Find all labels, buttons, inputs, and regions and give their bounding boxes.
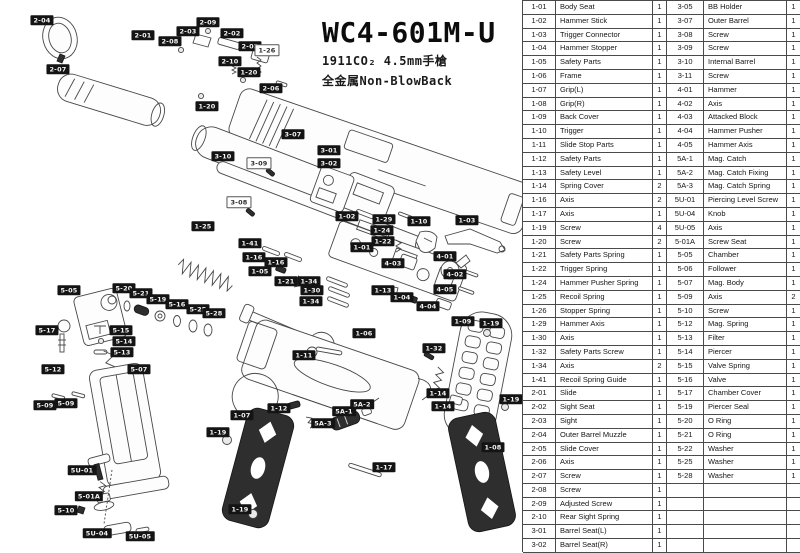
part-code: 1-13 bbox=[523, 167, 556, 181]
part-label-5U-01: 5U-01 bbox=[68, 465, 97, 475]
part-name: Grip(L) bbox=[556, 84, 653, 98]
part-qty: 1 bbox=[787, 346, 800, 360]
part-label-1-19: 1-19 bbox=[206, 427, 229, 437]
part-label-5A-2: 5A-2 bbox=[350, 399, 374, 409]
part-name: Axis bbox=[556, 456, 653, 470]
part-label-2-02: 2-02 bbox=[220, 28, 243, 38]
part-label-1-07: 1-07 bbox=[230, 410, 253, 420]
part-label-5-05: 5-05 bbox=[57, 285, 80, 295]
part-qty: 1 bbox=[653, 70, 667, 84]
part-name: Barrel Seat(L) bbox=[556, 525, 653, 539]
part-name: Axis bbox=[556, 208, 653, 222]
part-name: Back Cover bbox=[556, 111, 653, 125]
part-name: Mag. Body bbox=[704, 277, 787, 291]
part-qty: 1 bbox=[787, 318, 800, 332]
part-qty: 1 bbox=[787, 15, 800, 29]
part-qty: 1 bbox=[653, 443, 667, 457]
part-qty: 2 bbox=[787, 291, 800, 305]
part-code: 5-16 bbox=[667, 374, 704, 388]
part-label-1-01: 1-01 bbox=[350, 242, 373, 252]
part-code: 3-11 bbox=[667, 70, 704, 84]
part-name: Mag. Catch Spring bbox=[704, 180, 787, 194]
part-name: O Ring bbox=[704, 429, 787, 443]
part-qty: 1 bbox=[653, 332, 667, 346]
part-code: 5-05 bbox=[667, 249, 704, 263]
part-code: 1-05 bbox=[523, 56, 556, 70]
part-code: 3-07 bbox=[667, 15, 704, 29]
part-qty: 1 bbox=[787, 84, 800, 98]
part-code: 1-07 bbox=[523, 84, 556, 98]
part-qty: 1 bbox=[653, 318, 667, 332]
part-code: 1-10 bbox=[523, 125, 556, 139]
part-name: Screw bbox=[704, 42, 787, 56]
part-qty: 1 bbox=[787, 443, 800, 457]
part-qty: 1 bbox=[653, 305, 667, 319]
part-code: 5-15 bbox=[667, 360, 704, 374]
part-code bbox=[667, 511, 704, 525]
part-name: Trigger bbox=[556, 125, 653, 139]
part-label-1-02: 1-02 bbox=[335, 211, 358, 221]
part-label-5-07: 5-07 bbox=[127, 364, 150, 374]
part-code: 4-02 bbox=[667, 98, 704, 112]
part-qty: 1 bbox=[653, 525, 667, 539]
part-qty: 1 bbox=[787, 387, 800, 401]
part-label-1-19: 1-19 bbox=[479, 318, 502, 328]
part-qty: 1 bbox=[787, 29, 800, 43]
part-qty: 1 bbox=[787, 125, 800, 139]
part-name: Barrel Seat(R) bbox=[556, 539, 653, 553]
part-code: 1-12 bbox=[523, 153, 556, 167]
part-code: 1-11 bbox=[523, 139, 556, 153]
part-label-5U-04: 5U-04 bbox=[83, 528, 112, 538]
part-code: 5-17 bbox=[667, 387, 704, 401]
part-name: Hammer bbox=[704, 84, 787, 98]
part-code: 2-05 bbox=[523, 443, 556, 457]
part-qty: 1 bbox=[787, 222, 800, 236]
part-name bbox=[704, 525, 787, 539]
part-label-2-06: 2-06 bbox=[259, 83, 282, 93]
part-qty: 1 bbox=[653, 401, 667, 415]
part-name: Screw Seat bbox=[704, 236, 787, 250]
part-code: 5A-2 bbox=[667, 167, 704, 181]
part-label-5-17: 5-17 bbox=[35, 325, 58, 335]
part-label-4-02: 4-02 bbox=[443, 269, 466, 279]
part-label-5-16: 5-16 bbox=[165, 299, 188, 309]
part-code: 5U-05 bbox=[667, 222, 704, 236]
part-name: Safety Parts Screw bbox=[556, 346, 653, 360]
part-name: Recoil Spring Guide bbox=[556, 374, 653, 388]
part-name: Safety Parts bbox=[556, 153, 653, 167]
part-label-4-04: 4-04 bbox=[416, 301, 439, 311]
part-name: Washer bbox=[704, 456, 787, 470]
part-name: Valve Spring bbox=[704, 360, 787, 374]
part-name: Body Seat bbox=[556, 1, 653, 15]
part-qty: 1 bbox=[653, 15, 667, 29]
part-qty: 1 bbox=[787, 249, 800, 263]
part-qty bbox=[787, 539, 800, 553]
part-label-1-29: 1-29 bbox=[372, 214, 395, 224]
part-name: Screw bbox=[704, 70, 787, 84]
part-name: Axis bbox=[556, 332, 653, 346]
part-label-5-09: 5-09 bbox=[54, 398, 77, 408]
part-name: Outer Barrel Muzzle bbox=[556, 429, 653, 443]
part-label-5-15: 5-15 bbox=[109, 325, 132, 335]
part-qty: 1 bbox=[653, 56, 667, 70]
part-code: 5-10 bbox=[667, 305, 704, 319]
part-code: 1-03 bbox=[523, 29, 556, 43]
part-label-1-10: 1-10 bbox=[407, 216, 430, 226]
part-name bbox=[704, 511, 787, 525]
part-code: 4-03 bbox=[667, 111, 704, 125]
part-code: 4-01 bbox=[667, 84, 704, 98]
part-label-1-09: 1-09 bbox=[451, 316, 474, 326]
part-label-1-11: 1-11 bbox=[292, 350, 315, 360]
part-name: Spring Cover bbox=[556, 180, 653, 194]
part-name bbox=[704, 539, 787, 553]
part-code: 5-19 bbox=[667, 401, 704, 415]
part-qty: 1 bbox=[787, 167, 800, 181]
part-label-1-05: 1-05 bbox=[248, 266, 271, 276]
part-qty: 1 bbox=[787, 332, 800, 346]
parts-table: 1-01Body Seat13-05BB Holder11-02Hammer S… bbox=[522, 0, 800, 552]
part-name: Slide bbox=[556, 387, 653, 401]
part-code: 5-06 bbox=[667, 263, 704, 277]
part-name: Axis bbox=[704, 222, 787, 236]
part-name: Outer Barrel bbox=[704, 15, 787, 29]
part-code: 5A-1 bbox=[667, 153, 704, 167]
part-label-5-14: 5-14 bbox=[112, 336, 135, 346]
part-code: 1-20 bbox=[523, 236, 556, 250]
part-name: Safety Parts bbox=[556, 56, 653, 70]
part-name bbox=[704, 498, 787, 512]
part-code: 1-19 bbox=[523, 222, 556, 236]
part-label-1-32: 1-32 bbox=[422, 343, 445, 353]
part-qty bbox=[787, 511, 800, 525]
part-label-3-01: 3-01 bbox=[317, 145, 340, 155]
part-qty: 1 bbox=[787, 236, 800, 250]
part-name: Chamber bbox=[704, 249, 787, 263]
part-label-4-05: 4-05 bbox=[433, 284, 456, 294]
part-label-3-02: 3-02 bbox=[317, 158, 340, 168]
part-code: 1-08 bbox=[523, 98, 556, 112]
part-label-1-03: 1-03 bbox=[455, 215, 478, 225]
part-label-5-09: 5-09 bbox=[33, 400, 56, 410]
part-label-1-13: 1-13 bbox=[371, 285, 394, 295]
part-qty: 1 bbox=[787, 470, 800, 484]
part-label-1-34: 1-34 bbox=[299, 296, 322, 306]
part-code: 2-01 bbox=[523, 387, 556, 401]
part-qty: 1 bbox=[787, 415, 800, 429]
part-qty: 1 bbox=[787, 111, 800, 125]
part-name: Axis bbox=[704, 98, 787, 112]
part-label-1-21: 1-21 bbox=[274, 276, 297, 286]
part-qty: 1 bbox=[653, 98, 667, 112]
part-name: Adjusted Screw bbox=[556, 498, 653, 512]
part-qty: 1 bbox=[787, 360, 800, 374]
part-label-3-08: 3-08 bbox=[226, 196, 251, 208]
part-name: Safety Parts Spring bbox=[556, 249, 653, 263]
part-code: 4-04 bbox=[667, 125, 704, 139]
part-qty: 1 bbox=[787, 1, 800, 15]
part-label-3-10: 3-10 bbox=[211, 151, 234, 161]
part-name: Screw bbox=[704, 29, 787, 43]
part-code: 1-25 bbox=[523, 291, 556, 305]
part-name: Sight Seat bbox=[556, 401, 653, 415]
part-code: 5U-04 bbox=[667, 208, 704, 222]
part-qty: 1 bbox=[653, 1, 667, 15]
part-qty: 1 bbox=[653, 415, 667, 429]
part-qty: 1 bbox=[787, 153, 800, 167]
part-code: 1-22 bbox=[523, 263, 556, 277]
part-qty: 1 bbox=[653, 456, 667, 470]
part-label-3-07: 3-07 bbox=[281, 129, 304, 139]
part-qty: 1 bbox=[787, 374, 800, 388]
part-label-4-01: 4-01 bbox=[433, 251, 456, 261]
part-name: Trigger Connector bbox=[556, 29, 653, 43]
part-code: 5-14 bbox=[667, 346, 704, 360]
part-qty: 1 bbox=[787, 180, 800, 194]
model-title: WC4-601M-U bbox=[322, 16, 522, 49]
part-name: Mag. Catch Fixing bbox=[704, 167, 787, 181]
part-qty: 1 bbox=[653, 153, 667, 167]
part-label-1-08: 1-08 bbox=[481, 442, 504, 452]
part-code: 2-02 bbox=[523, 401, 556, 415]
part-name: Hammer Axis bbox=[556, 318, 653, 332]
part-name: Attacked Block bbox=[704, 111, 787, 125]
part-code: 5-21 bbox=[667, 429, 704, 443]
part-label-5-12: 5-12 bbox=[41, 364, 64, 374]
part-label-1-16: 1-16 bbox=[242, 252, 265, 262]
part-name: Axis bbox=[704, 291, 787, 305]
part-code: 1-24 bbox=[523, 277, 556, 291]
part-code: 1-21 bbox=[523, 249, 556, 263]
part-qty: 2 bbox=[653, 236, 667, 250]
part-qty: 1 bbox=[787, 98, 800, 112]
part-label-5A-3: 5A-3 bbox=[311, 418, 335, 428]
part-code bbox=[667, 525, 704, 539]
part-name: Slide Cover bbox=[556, 443, 653, 457]
part-code: 5-22 bbox=[667, 443, 704, 457]
part-name: Valve bbox=[704, 374, 787, 388]
part-label-1-19: 1-19 bbox=[228, 504, 251, 514]
part-code: 2-04 bbox=[523, 429, 556, 443]
part-qty: 1 bbox=[653, 167, 667, 181]
part-name: Screw bbox=[704, 305, 787, 319]
part-qty: 1 bbox=[787, 277, 800, 291]
part-name: Slide Stop Parts bbox=[556, 139, 653, 153]
part-qty: 1 bbox=[653, 498, 667, 512]
part-label-1-22: 1-22 bbox=[371, 236, 394, 246]
part-qty: 2 bbox=[653, 194, 667, 208]
part-qty: 1 bbox=[653, 249, 667, 263]
part-name: Piercing Level Screw bbox=[704, 194, 787, 208]
part-label-2-03: 2-03 bbox=[176, 26, 199, 36]
part-code: 3-05 bbox=[667, 1, 704, 15]
part-name: BB Holder bbox=[704, 1, 787, 15]
part-code: 5-20 bbox=[667, 415, 704, 429]
part-name: Grip(R) bbox=[556, 98, 653, 112]
part-name: Frame bbox=[556, 70, 653, 84]
part-label-5-10: 5-10 bbox=[54, 505, 77, 515]
part-code: 1-14 bbox=[523, 180, 556, 194]
part-label-2-08: 2-08 bbox=[158, 36, 181, 46]
part-code: 1-17 bbox=[523, 208, 556, 222]
part-qty: 1 bbox=[787, 429, 800, 443]
part-name: Trigger Spring bbox=[556, 263, 653, 277]
part-qty: 1 bbox=[787, 401, 800, 415]
part-label-2-01: 2-01 bbox=[131, 30, 154, 40]
part-qty: 1 bbox=[653, 139, 667, 153]
part-name: Hammer Pusher Spring bbox=[556, 277, 653, 291]
part-name: Knob bbox=[704, 208, 787, 222]
part-label-1-19: 1-19 bbox=[499, 394, 522, 404]
part-name: Safety Level bbox=[556, 167, 653, 181]
part-label-1-17: 1-17 bbox=[372, 462, 395, 472]
part-qty: 1 bbox=[653, 42, 667, 56]
part-name: Screw bbox=[556, 236, 653, 250]
part-label-5-01A: 5-01A bbox=[75, 491, 103, 501]
part-qty: 1 bbox=[653, 374, 667, 388]
part-qty: 1 bbox=[653, 208, 667, 222]
part-code: 1-09 bbox=[523, 111, 556, 125]
part-label-3-09: 3-09 bbox=[246, 157, 271, 169]
part-label-1-06: 1-06 bbox=[352, 328, 375, 338]
part-name: Piercer Seal bbox=[704, 401, 787, 415]
part-label-5-28: 5-28 bbox=[202, 308, 225, 318]
part-qty: 1 bbox=[787, 194, 800, 208]
part-name: Internal Barrel bbox=[704, 56, 787, 70]
part-name: Stopper Spring bbox=[556, 305, 653, 319]
part-code bbox=[667, 539, 704, 553]
part-code: 1-41 bbox=[523, 374, 556, 388]
part-qty: 4 bbox=[653, 222, 667, 236]
part-code: 5-09 bbox=[667, 291, 704, 305]
part-qty: 1 bbox=[653, 346, 667, 360]
part-name: Hammer Pusher bbox=[704, 125, 787, 139]
part-label-1-14: 1-14 bbox=[426, 388, 449, 398]
part-label-1-41: 1-41 bbox=[238, 238, 261, 248]
part-label-2-07: 2-07 bbox=[46, 64, 69, 74]
part-code: 2-08 bbox=[523, 484, 556, 498]
part-qty: 1 bbox=[653, 470, 667, 484]
part-label-1-25: 1-25 bbox=[191, 221, 214, 231]
part-name: Axis bbox=[556, 194, 653, 208]
part-qty: 1 bbox=[787, 56, 800, 70]
part-qty: 1 bbox=[787, 305, 800, 319]
part-code: 1-02 bbox=[523, 15, 556, 29]
part-name: Filter bbox=[704, 332, 787, 346]
part-qty: 1 bbox=[787, 70, 800, 84]
part-label-1-12: 1-12 bbox=[267, 403, 290, 413]
part-name: Mag. Catch bbox=[704, 153, 787, 167]
part-code: 1-29 bbox=[523, 318, 556, 332]
part-qty: 1 bbox=[653, 511, 667, 525]
part-qty bbox=[787, 498, 800, 512]
part-label-5U-05: 5U-05 bbox=[126, 531, 155, 541]
part-name: Hammer Stopper bbox=[556, 42, 653, 56]
subtitle-caliber: 1911CO₂ 4.5mm手槍 bbox=[322, 52, 522, 69]
part-name: Rear Sight Spring bbox=[556, 511, 653, 525]
part-code: 5-13 bbox=[667, 332, 704, 346]
part-name: Hammer Axis bbox=[704, 139, 787, 153]
part-code: 3-02 bbox=[523, 539, 556, 553]
part-code: 5-01A bbox=[667, 236, 704, 250]
part-qty: 1 bbox=[653, 387, 667, 401]
part-qty bbox=[787, 525, 800, 539]
part-qty: 1 bbox=[653, 263, 667, 277]
part-qty bbox=[787, 484, 800, 498]
part-qty: 1 bbox=[653, 484, 667, 498]
part-name: Hammer Stick bbox=[556, 15, 653, 29]
part-code: 5-28 bbox=[667, 470, 704, 484]
page: { "title": { "model": "WC4-601M-U", "sub… bbox=[0, 0, 800, 552]
part-qty: 1 bbox=[787, 208, 800, 222]
part-code: 5-25 bbox=[667, 456, 704, 470]
part-qty: 1 bbox=[653, 291, 667, 305]
part-name: Sight bbox=[556, 415, 653, 429]
part-name: Follower bbox=[704, 263, 787, 277]
part-code: 2-07 bbox=[523, 470, 556, 484]
part-qty: 1 bbox=[653, 277, 667, 291]
subtitle-material: 全金属Non-BlowBack bbox=[322, 72, 522, 89]
part-code: 1-16 bbox=[523, 194, 556, 208]
part-label-2-04: 2-04 bbox=[30, 15, 53, 25]
part-qty: 1 bbox=[787, 139, 800, 153]
part-code: 2-09 bbox=[523, 498, 556, 512]
part-qty: 1 bbox=[653, 29, 667, 43]
part-code: 5-12 bbox=[667, 318, 704, 332]
part-code bbox=[667, 498, 704, 512]
part-qty: 2 bbox=[653, 180, 667, 194]
part-name: Screw bbox=[556, 470, 653, 484]
part-label-1-26: 1-26 bbox=[254, 44, 279, 56]
part-qty: 1 bbox=[653, 125, 667, 139]
part-name: Screw bbox=[556, 484, 653, 498]
part-code: 5-07 bbox=[667, 277, 704, 291]
part-name: Chamber Cover bbox=[704, 387, 787, 401]
part-code: 1-32 bbox=[523, 346, 556, 360]
title-block: WC4-601M-U 1911CO₂ 4.5mm手槍 全金属Non-BlowBa… bbox=[322, 16, 522, 89]
part-label-2-09: 2-09 bbox=[196, 17, 219, 27]
part-label-4-03: 4-03 bbox=[381, 258, 404, 268]
part-name bbox=[704, 484, 787, 498]
part-qty: 1 bbox=[653, 429, 667, 443]
part-label-1-24: 1-24 bbox=[370, 225, 393, 235]
part-code: 2-06 bbox=[523, 456, 556, 470]
part-code: 2-03 bbox=[523, 415, 556, 429]
part-label-2-10: 2-10 bbox=[218, 56, 241, 66]
part-qty: 1 bbox=[653, 84, 667, 98]
part-code: 1-06 bbox=[523, 70, 556, 84]
part-qty: 2 bbox=[653, 360, 667, 374]
part-name: Axis bbox=[556, 360, 653, 374]
part-code: 3-08 bbox=[667, 29, 704, 43]
part-code bbox=[667, 484, 704, 498]
part-qty: 1 bbox=[787, 456, 800, 470]
part-code: 3-01 bbox=[523, 525, 556, 539]
part-code: 1-30 bbox=[523, 332, 556, 346]
part-code: 1-01 bbox=[523, 1, 556, 15]
part-code: 3-09 bbox=[667, 42, 704, 56]
part-label-1-20: 1-20 bbox=[195, 101, 218, 111]
part-code: 3-10 bbox=[667, 56, 704, 70]
part-qty: 1 bbox=[787, 263, 800, 277]
part-name: Piercer bbox=[704, 346, 787, 360]
part-name: Mag. Spring bbox=[704, 318, 787, 332]
part-code: 1-34 bbox=[523, 360, 556, 374]
part-label-5-13: 5-13 bbox=[110, 347, 133, 357]
part-code: 5U-01 bbox=[667, 194, 704, 208]
